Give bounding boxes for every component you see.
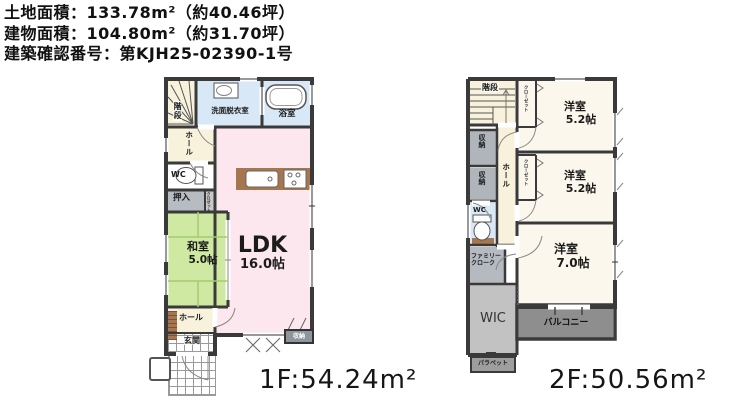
land-area-text: 土地面積：133.78m²（約40.46坪）: [4, 3, 295, 24]
floor1-hall-lower-label: ホール: [179, 313, 203, 322]
header-info: 土地面積：133.78m²（約40.46坪） 建物面積：104.80m²（約31…: [4, 3, 295, 65]
floor2-closet2-label: クローゼット: [523, 159, 528, 186]
floor1-shoe-cabinet: [167, 311, 177, 340]
floor2-bedroom3-label: 洋室 7.0帖: [518, 243, 614, 271]
floor1-genkan-label: 玄関: [184, 336, 200, 345]
floor2-stairs-label: 階段: [481, 83, 499, 92]
floor1-storage-label: 収納: [284, 329, 314, 344]
floor1-bathroom-label: 浴室: [264, 110, 310, 120]
floor2-balcony-label: バルコニー: [519, 318, 613, 328]
floor2-plan: 階段 ホール 収納 収納 WC ファミリー クローク WIC パラペット クロー…: [460, 75, 635, 385]
floor1-stairs-label: 階段: [173, 101, 182, 121]
floor2-wc-label: WC: [473, 206, 486, 214]
window-tick-marks: [617, 108, 623, 278]
floor1-wc-label: WC: [171, 170, 186, 179]
floor2-area-label: 2F:50.56m²: [549, 365, 707, 395]
floor1-ldk: [215, 127, 310, 333]
floor-plan-page: { "header": { "land_area": "土地面積：133.78m…: [0, 0, 740, 410]
floor2-closet1-label: クローゼット: [523, 85, 528, 112]
floor1-closet-strip-label: クロゼット: [206, 192, 211, 212]
floor2-storage1-label: 収納: [478, 134, 486, 148]
confirmation-number-text: 建築確認番号：第KJH25-02390-1号: [4, 44, 295, 65]
floor1-hall-upper-label: ホール: [184, 131, 193, 157]
floor1-porch: [168, 354, 216, 396]
floor2-bedroom2-label: 洋室 5.2帖: [536, 170, 614, 195]
floor2-family-cloak-label: ファミリー クローク: [471, 254, 505, 268]
floor1-plan: 階段 洗面脱衣室 浴室 ホール WC 押入 クロゼット 和室 5.0帖 LDK …: [146, 75, 331, 400]
floor2-parapet-label: パラペット: [470, 361, 516, 368]
floor1-washroom: [196, 81, 262, 127]
floor2-bedroom1-label: 洋室 5.2帖: [536, 101, 614, 126]
floor1-bathroom: [262, 81, 310, 127]
floor2-hall-label: ホール: [501, 163, 510, 189]
floor1-oshiire-label: 押入: [173, 194, 190, 204]
building-area-text: 建物面積：104.80m²（約31.70坪）: [4, 24, 295, 45]
floor1-washroom-label: 洗面脱衣室: [198, 107, 262, 116]
terrace-door-marks: [246, 338, 280, 352]
floor1-area-label: 1F:54.24m²: [259, 365, 417, 395]
floor1-entry-step: [149, 357, 171, 381]
floor1-ldk-label: LDK 16.0帖: [215, 233, 310, 273]
floor2-wic-label: WIC: [470, 312, 516, 327]
floor2-wc-counter: [472, 238, 494, 244]
floor2-storage2-label: 収納: [478, 171, 486, 185]
floor1-kitchen-counter: [236, 168, 310, 190]
